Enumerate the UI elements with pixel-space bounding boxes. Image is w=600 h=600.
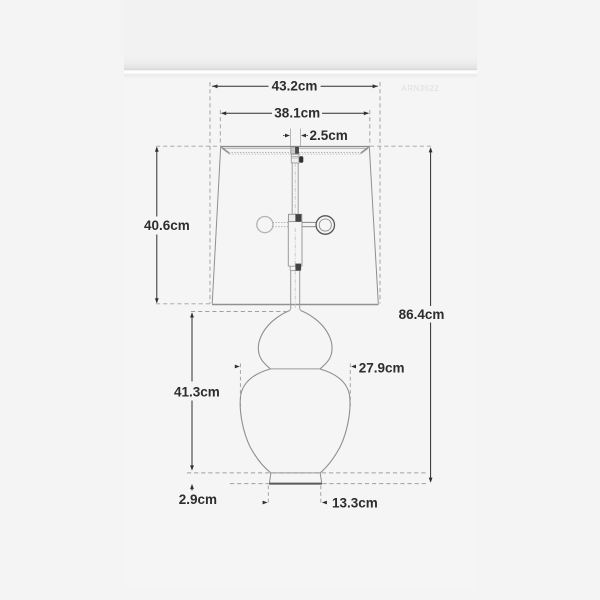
svg-text:ARN3622: ARN3622 xyxy=(401,84,439,93)
svg-text:27.9cm: 27.9cm xyxy=(359,360,405,375)
svg-text:40.6cm: 40.6cm xyxy=(144,218,190,233)
svg-text:13.3cm: 13.3cm xyxy=(332,495,378,510)
svg-text:86.4cm: 86.4cm xyxy=(399,307,445,322)
svg-text:2.5cm: 2.5cm xyxy=(310,128,348,143)
svg-text:43.2cm: 43.2cm xyxy=(272,78,318,93)
svg-text:41.3cm: 41.3cm xyxy=(174,384,220,399)
svg-text:2.9cm: 2.9cm xyxy=(179,492,217,507)
svg-text:38.1cm: 38.1cm xyxy=(274,105,320,120)
